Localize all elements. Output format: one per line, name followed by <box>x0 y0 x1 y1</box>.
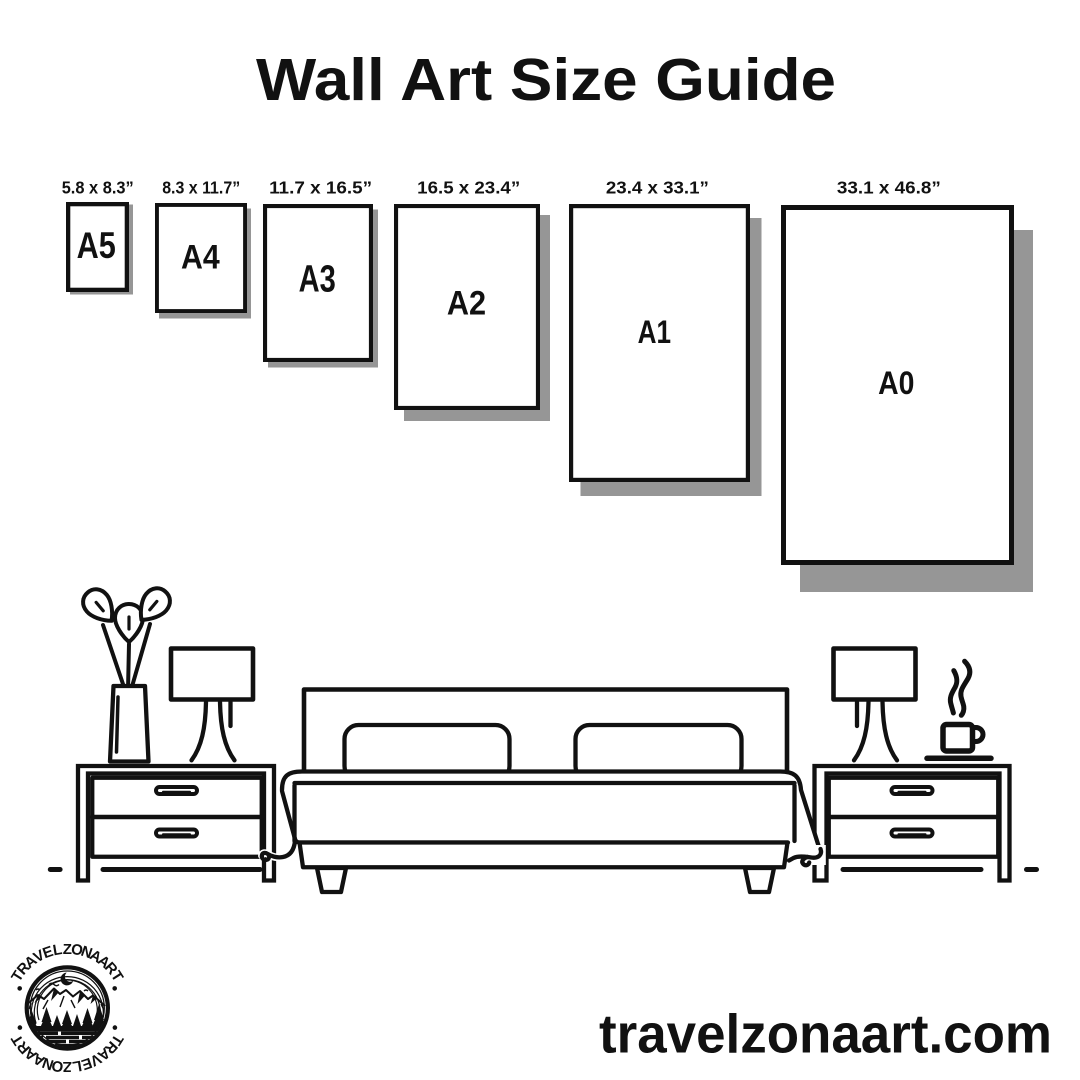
svg-text:5.8 x 8.3”: 5.8 x 8.3” <box>62 178 134 198</box>
svg-text:travelzonaart.com: travelzonaart.com <box>599 1003 1052 1065</box>
svg-text:Wall Art Size Guide: Wall Art Size Guide <box>256 46 836 113</box>
svg-text:11.7 x 16.5”: 11.7 x 16.5” <box>269 178 372 198</box>
svg-text:A1: A1 <box>638 314 671 350</box>
svg-text:A5: A5 <box>77 225 116 266</box>
svg-text:A2: A2 <box>447 284 486 322</box>
svg-text:23.4 x 33.1”: 23.4 x 33.1” <box>606 178 709 198</box>
svg-text:8.3 x 11.7”: 8.3 x 11.7” <box>162 178 240 198</box>
svg-text:16.5 x 23.4”: 16.5 x 23.4” <box>417 178 520 198</box>
svg-text:A0: A0 <box>878 365 914 401</box>
svg-text:A4: A4 <box>181 239 220 277</box>
svg-text:33.1 x 46.8”: 33.1 x 46.8” <box>837 178 941 198</box>
svg-text:A3: A3 <box>299 259 336 301</box>
